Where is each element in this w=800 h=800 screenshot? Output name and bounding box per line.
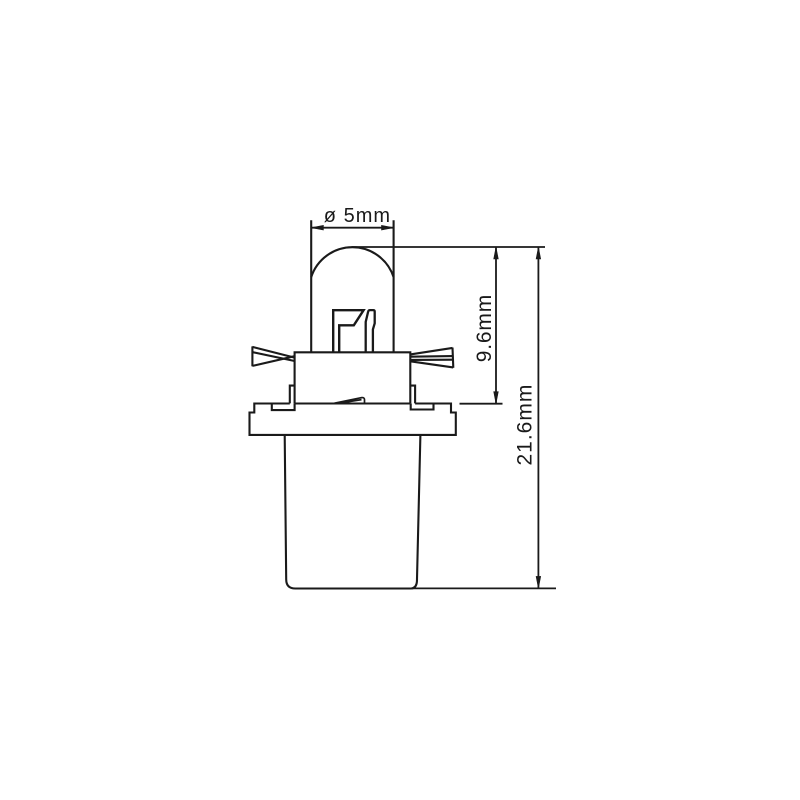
svg-text:9.6mm: 9.6mm bbox=[473, 294, 496, 362]
svg-text:ø 5mm: ø 5mm bbox=[324, 205, 391, 227]
svg-text:21.6mm: 21.6mm bbox=[514, 384, 537, 466]
